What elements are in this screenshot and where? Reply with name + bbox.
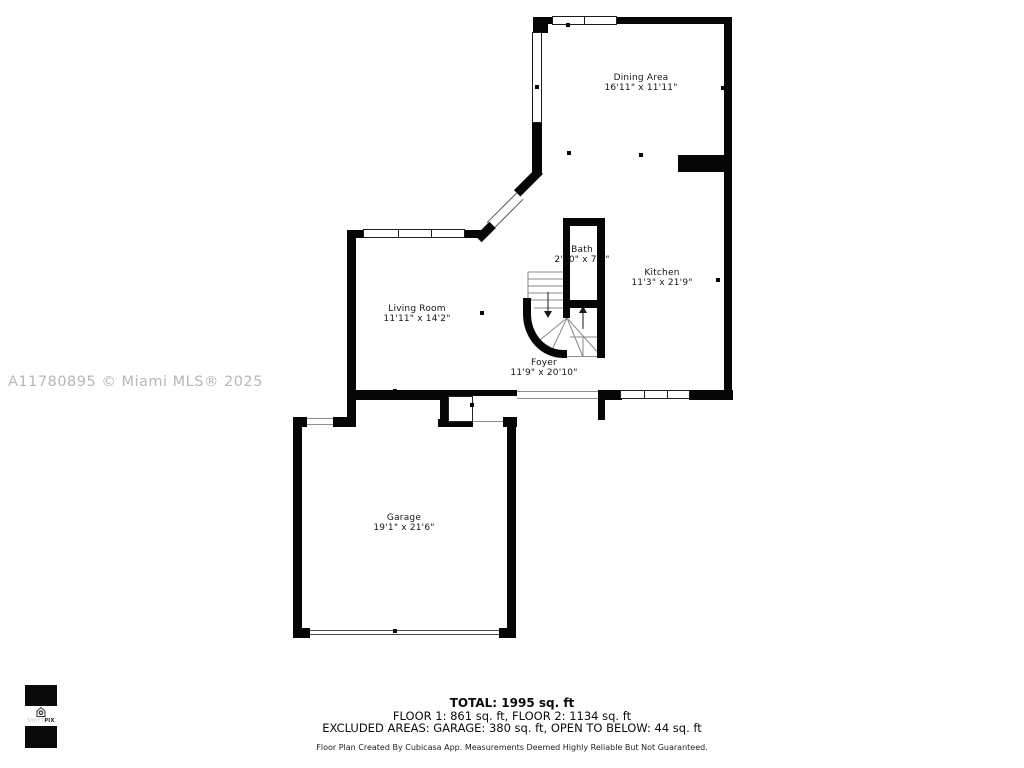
wall [570, 300, 597, 308]
wall [724, 17, 732, 400]
window [552, 16, 617, 25]
wall [347, 230, 356, 427]
tick-mark [393, 389, 397, 393]
opening-line [517, 398, 598, 399]
wall [598, 390, 622, 400]
mls-watermark: A11780895 © Miami MLS® 2025 [8, 374, 263, 390]
opening-line [517, 391, 598, 392]
wall [532, 122, 542, 174]
wall [293, 417, 302, 638]
window [363, 229, 465, 238]
wall [464, 230, 481, 238]
summary-disclaimer: Floor Plan Created By Cubicasa App. Meas… [0, 742, 1024, 754]
swiftpix-house-icon [35, 706, 47, 718]
garage-door-line [310, 630, 499, 631]
wall [616, 17, 724, 24]
badge-middle: SWIFTPIX [25, 706, 57, 726]
tick-mark [393, 629, 397, 633]
opening-line [307, 418, 333, 419]
window [532, 32, 542, 123]
tick-mark [566, 23, 570, 27]
badge-top-block [25, 685, 57, 706]
badge-brand-text: SWIFTPIX [25, 719, 57, 724]
wall-stub [678, 155, 725, 172]
badge-bottom-block [25, 726, 57, 748]
tick-mark [480, 311, 484, 315]
tick-mark [350, 311, 354, 315]
wall [356, 390, 441, 400]
wall [597, 218, 605, 358]
tick-mark [535, 85, 539, 89]
summary-excluded: EXCLUDED AREAS: GARAGE: 380 sq. ft, OPEN… [0, 722, 1024, 734]
wall [689, 390, 733, 400]
swiftpix-badge: SWIFTPIX [25, 685, 57, 748]
tick-mark [721, 86, 725, 90]
brand-bold: PIX [44, 718, 54, 724]
tick-mark [567, 151, 571, 155]
wall [333, 417, 356, 427]
garage-door-leaf [448, 396, 473, 422]
tick-mark [716, 278, 720, 282]
garage-door-line [310, 634, 499, 635]
opening-line [567, 356, 597, 357]
tick-mark [639, 153, 643, 157]
summary-total: TOTAL: 1995 sq. ft [0, 697, 1024, 709]
opening-line [307, 424, 333, 425]
wall-stub [598, 400, 605, 420]
opening-line [473, 421, 507, 422]
wall [293, 628, 310, 638]
tick-mark [296, 521, 300, 525]
window [620, 390, 690, 399]
brand-light: SWIFT [27, 718, 44, 724]
wall [499, 628, 516, 638]
tick-mark [509, 525, 513, 529]
floor-plan-page: Dining Area 16'11" x 11'11" Kitchen 11'3… [0, 0, 1024, 768]
wall [533, 17, 548, 33]
tick-mark [470, 403, 474, 407]
